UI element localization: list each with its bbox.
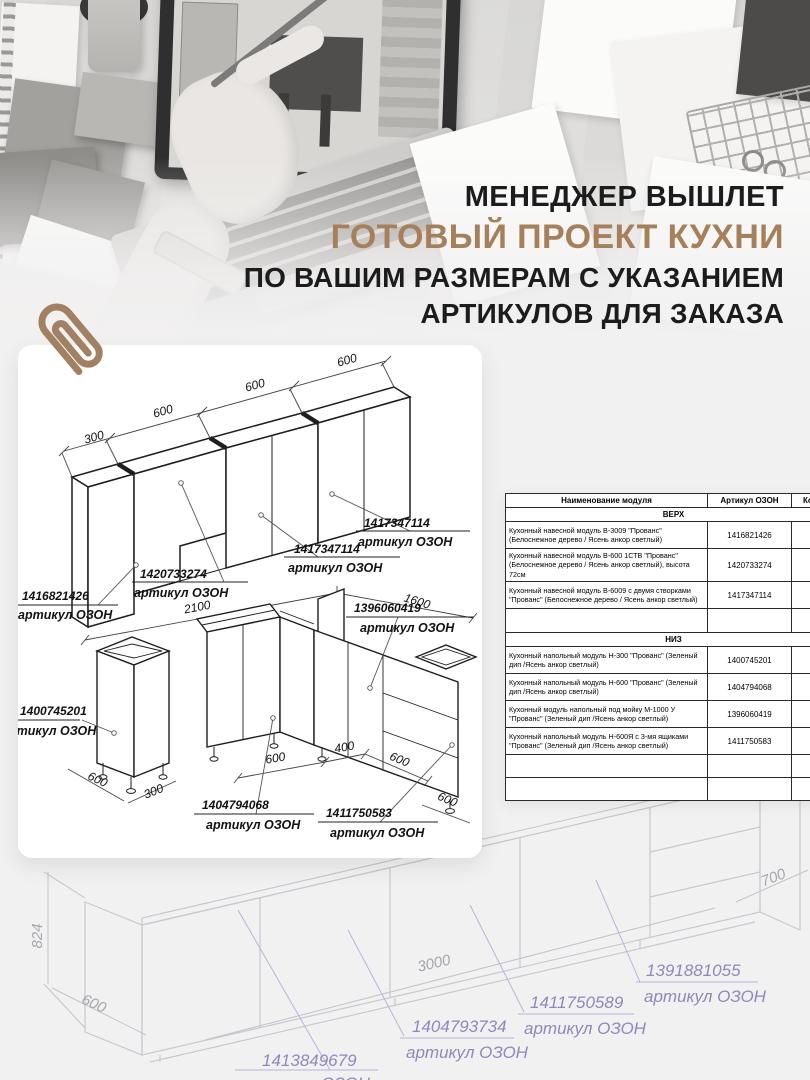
module-article: 1396060419 — [708, 701, 792, 728]
dim-600: 600 — [86, 769, 110, 790]
module-name: Кухонный напольный модуль Н-600Я с 3-мя … — [506, 728, 708, 755]
svg-text:артикул ОЗОН: артикул ОЗОН — [358, 535, 453, 549]
empty-row — [506, 755, 810, 778]
svg-text:1413849679: 1413849679 — [262, 1051, 357, 1070]
bg-article-label-b: 1404793734 артикул ОЗОН — [406, 1017, 529, 1062]
table-row: Кухонный навесной модуль В-6009 с двумя … — [506, 582, 810, 609]
bg-article-label-c: 1411750589 артикул ОЗОН — [524, 993, 647, 1038]
bg-dim-700: 700 — [759, 865, 789, 890]
headline-line-1: МЕНЕДЖЕР ВЫШЛЕТ — [244, 179, 784, 216]
bg-article-label-d: 1391881055 артикул ОЗОН — [644, 961, 767, 1006]
section-row: НИЗ — [506, 633, 810, 647]
qty-cell — [792, 728, 810, 755]
dim-600: 600 — [264, 749, 286, 766]
module-article: 1420733274 — [708, 549, 792, 582]
qty-cell — [792, 674, 810, 701]
bg-dim-824: 824 — [29, 923, 46, 948]
col-header-name: Наименование модуля — [506, 494, 708, 508]
headline-line-3: ПО ВАШИМ РАЗМЕРАМ С УКАЗАНИЕМ — [244, 259, 784, 296]
svg-text:1404794068: 1404794068 — [202, 798, 269, 812]
bg-dim-600: 600 — [79, 991, 109, 1017]
svg-text:артикул ОЗОН: артикул ОЗОН — [330, 826, 425, 840]
module-name: Кухонный навесной модуль В-3009 "Прованс… — [506, 522, 708, 549]
svg-text:артикул ОЗОН: артикул ОЗОН — [206, 818, 301, 832]
lower-article-label-h600: 1404794068 артикул ОЗОН — [202, 798, 301, 832]
module-article: 1416821426 — [708, 522, 792, 549]
empty-row — [506, 609, 810, 633]
svg-text:1396060419: 1396060419 — [354, 601, 421, 615]
svg-text:1411750589: 1411750589 — [530, 993, 624, 1012]
col-header-qty: Кол-во — [792, 494, 810, 508]
section-title-bottom: НИЗ — [506, 633, 810, 647]
svg-text:артикул ОЗОН: артикул ОЗОН — [288, 561, 383, 575]
svg-text:1404793734: 1404793734 — [412, 1017, 507, 1036]
dim-300: 300 — [82, 428, 105, 447]
bg-article-label-a: 1413849679 артикул ОЗОН — [248, 1051, 371, 1080]
svg-text:артикул ОЗОН: артикул ОЗОН — [406, 1043, 529, 1062]
svg-text:1417347114: 1417347114 — [364, 516, 430, 530]
qty-cell — [792, 522, 810, 549]
module-article: 1417347114 — [708, 582, 792, 609]
section-row: ВЕРХ — [506, 508, 810, 522]
qty-cell — [792, 701, 810, 728]
module-name: Кухонный напольный модуль Н-600 "Прованс… — [506, 674, 708, 701]
svg-text:1411750583: 1411750583 — [326, 806, 392, 820]
headline-line-4: АРТИКУЛОВ ДЛЯ ЗАКАЗА — [244, 296, 784, 332]
svg-text:1391881055: 1391881055 — [646, 961, 741, 980]
module-article: 1404794068 — [708, 674, 792, 701]
empty-row — [506, 778, 810, 801]
bg-dimension-lines — [44, 870, 808, 1040]
lower-article-label-drawers: 1411750583 артикул ОЗОН — [326, 806, 425, 840]
table-row: Кухонный модуль напольный под мойку М-10… — [506, 701, 810, 728]
module-name: Кухонный модуль напольный под мойку М-10… — [506, 701, 708, 728]
dim-2100: 2100 — [182, 598, 212, 617]
headline: МЕНЕДЖЕР ВЫШЛЕТ ГОТОВЫЙ ПРОЕКТ КУХНИ ПО … — [244, 179, 784, 332]
module-article: 1400745201 — [708, 647, 792, 674]
svg-text:артикул ОЗОН: артикул ОЗОН — [248, 1074, 371, 1080]
table-row: Кухонный напольный модуль Н-300 "Прованс… — [506, 647, 810, 674]
table-row: Кухонный напольный модуль Н-600 "Прованс… — [506, 674, 810, 701]
qty-cell — [792, 582, 810, 609]
col-header-article: Артикул ОЗОН — [708, 494, 792, 508]
qty-cell — [792, 647, 810, 674]
kitchen-project-card: 300 600 600 600 1416821426 артикул ОЗОН … — [18, 345, 482, 858]
module-name: Кухонный навесной модуль В-6009 с двумя … — [506, 582, 708, 609]
svg-text:1400745201: 1400745201 — [20, 704, 87, 718]
table-header-row: Наименование модуля Артикул ОЗОН Кол-во — [506, 494, 810, 508]
module-name: Кухонный навесной модуль В-600 1СТВ "Про… — [506, 549, 708, 582]
dim-600: 600 — [335, 353, 358, 370]
bg-dim-3000: 3000 — [416, 951, 453, 975]
svg-text:артикул ОЗОН: артикул ОЗОН — [360, 621, 455, 635]
dim-600: 600 — [243, 376, 266, 395]
paperclip-icon — [26, 292, 112, 384]
svg-text:артикул ОЗОН: артикул ОЗОН — [644, 987, 767, 1006]
svg-text:1420733274: 1420733274 — [140, 567, 207, 581]
table-row: Кухонный навесной модуль В-600 1СТВ "Про… — [506, 549, 810, 582]
dim-600: 600 — [151, 402, 174, 421]
promo-poster: 824 600 3000 700 1413849679 артикул ОЗОН… — [0, 0, 810, 1080]
lower-article-label-sink: 1396060419 артикул ОЗОН — [354, 601, 455, 635]
svg-text:1417347114: 1417347114 — [294, 542, 360, 556]
upper-article-label-4: 1417347114 артикул ОЗОН — [358, 516, 453, 549]
svg-text:артикул ОЗОН: артикул ОЗОН — [524, 1019, 647, 1038]
table-row: Кухонный напольный модуль Н-600Я с 3-мя … — [506, 728, 810, 755]
base-cabinets-drawing: 2100 1600 — [18, 585, 482, 858]
table-row: Кухонный навесной модуль В-3009 "Прованс… — [506, 522, 810, 549]
spec-table: Наименование модуля Артикул ОЗОН Кол-во … — [505, 493, 810, 801]
dim-300: 300 — [142, 781, 166, 802]
qty-cell — [792, 549, 810, 582]
svg-text:артикул ОЗОН: артикул ОЗОН — [18, 724, 97, 738]
headline-line-2: ГОТОВЫЙ ПРОЕКТ КУХНИ — [244, 216, 784, 259]
section-title-top: ВЕРХ — [506, 508, 810, 522]
module-name: Кухонный напольный модуль Н-300 "Прованс… — [506, 647, 708, 674]
module-article: 1411750583 — [708, 728, 792, 755]
